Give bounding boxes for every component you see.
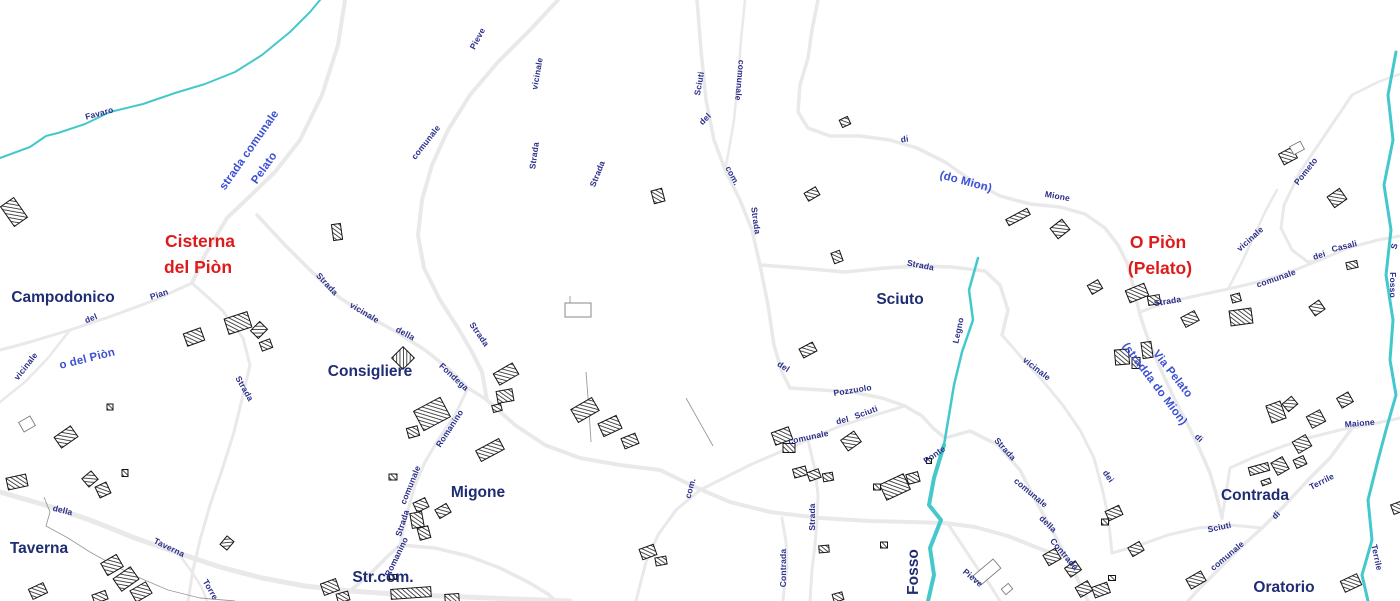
building	[1231, 293, 1242, 303]
map-viewport[interactable]: Cisternadel PiònO Piòn(Pelato)Campodonic…	[0, 0, 1400, 601]
building	[655, 556, 667, 566]
building	[639, 544, 657, 559]
stream	[944, 258, 978, 445]
map-label-vicinale: vicinale	[348, 300, 381, 325]
map-label-o-piòn: O Piòn	[1130, 232, 1186, 252]
map-label-pieve: Pieve	[468, 26, 488, 51]
map-label-sciuti: Sciuti	[1207, 520, 1233, 535]
building	[1391, 502, 1400, 515]
map-label-o-del-piòn: o del Piòn	[58, 346, 116, 371]
building-outline	[19, 416, 36, 432]
building	[1306, 410, 1325, 429]
map-label-comunale: comunale	[1255, 267, 1297, 290]
building	[410, 512, 424, 529]
map-label-fosso: Fosso	[905, 549, 922, 595]
map-label-strada: Strada	[393, 508, 411, 537]
building	[1340, 574, 1361, 592]
road	[1002, 335, 1112, 553]
map-label-comunale: comunale	[1208, 539, 1246, 573]
building	[822, 472, 833, 482]
map-label-del: del	[83, 311, 99, 325]
map-label-della: della	[1037, 513, 1059, 534]
map-label-oratorio: Oratorio	[1253, 579, 1314, 596]
building	[841, 431, 862, 451]
building	[807, 469, 821, 482]
building	[435, 503, 451, 518]
building	[1282, 396, 1298, 411]
map-label-strada: Strada	[314, 271, 340, 298]
building	[220, 536, 234, 550]
map-label-casali: Casali	[1330, 238, 1358, 254]
road	[1281, 95, 1352, 262]
building	[28, 583, 47, 600]
map-label-mione: Mione	[1044, 189, 1071, 203]
building	[417, 526, 431, 540]
building	[496, 389, 514, 404]
building	[336, 591, 350, 601]
building	[413, 498, 429, 513]
building	[391, 587, 432, 600]
map-label-ponte: Ponte	[921, 443, 947, 465]
map-label-strada: Strada	[807, 503, 817, 530]
road	[0, 492, 570, 601]
map-label-cisterna: Cisterna	[165, 231, 235, 251]
map-label-pometo: Pometo	[1292, 155, 1320, 186]
map-label-comunale: comunale	[733, 59, 747, 101]
map-canvas[interactable]: Cisternadel PiònO Piòn(Pelato)Campodonic…	[0, 0, 1400, 601]
minor-lines-layer	[44, 296, 713, 601]
map-label-vicinale: vicinale	[12, 350, 40, 382]
building	[107, 404, 113, 410]
map-label-strada: Strada	[468, 320, 492, 348]
building	[92, 590, 108, 601]
building	[493, 363, 519, 385]
building	[1, 198, 28, 227]
road	[697, 0, 790, 388]
building	[183, 328, 204, 346]
building	[1309, 300, 1325, 316]
stream	[0, 0, 320, 158]
building	[1125, 283, 1148, 303]
map-label-s: S	[1389, 242, 1400, 250]
building	[224, 312, 252, 335]
map-label-del-piòn: del Piòn	[164, 257, 232, 277]
map-label-legno: Legno	[950, 316, 965, 344]
stream	[1362, 52, 1396, 601]
building	[1109, 576, 1116, 581]
map-label-vicinale: vicinale	[1021, 355, 1053, 383]
building	[101, 554, 124, 575]
building-outline	[1001, 583, 1012, 594]
map-label-strada: Strada	[587, 159, 607, 188]
building	[880, 474, 911, 500]
map-label-dei: dei	[1311, 248, 1326, 261]
map-label-fondega: Fondega	[437, 361, 471, 393]
map-label-consigliere: Consigliere	[328, 363, 413, 380]
building	[1293, 456, 1307, 469]
building	[793, 466, 808, 478]
building	[1337, 392, 1354, 408]
map-label-strada: Strada	[527, 141, 541, 170]
road	[1133, 285, 1222, 518]
building	[6, 474, 28, 490]
map-label-sciuto: Sciuto	[876, 291, 923, 308]
building	[406, 426, 419, 439]
building	[259, 339, 272, 351]
building	[651, 188, 665, 203]
building	[331, 223, 342, 240]
building	[54, 426, 78, 448]
map-label-vicinale: vicinale	[1235, 224, 1266, 253]
map-label-contrada: Contrada	[1221, 487, 1289, 504]
road	[636, 406, 905, 601]
building	[445, 594, 460, 601]
map-label-terrile: Terrile	[1369, 543, 1384, 571]
building	[1092, 582, 1111, 598]
map-label-strada: Strada	[233, 374, 255, 403]
map-label-dei: dei	[1101, 468, 1116, 484]
building	[1346, 260, 1358, 269]
path-line	[686, 398, 713, 446]
map-label-della: della	[52, 503, 74, 518]
building	[804, 187, 820, 201]
map-label-strada: Strada	[992, 435, 1018, 462]
building	[1229, 308, 1253, 326]
building	[251, 322, 268, 339]
building	[799, 342, 817, 358]
building	[874, 484, 881, 490]
map-label-pelato: (Pelato)	[1128, 258, 1192, 278]
map-label-maione: Maione	[1344, 417, 1375, 430]
map-label-strada: Strada	[906, 258, 935, 273]
building	[1271, 457, 1289, 476]
building	[832, 592, 844, 601]
building	[598, 415, 622, 436]
building	[1248, 463, 1269, 476]
building	[122, 470, 128, 477]
building	[1102, 519, 1109, 525]
building	[82, 471, 98, 487]
building	[621, 433, 639, 449]
building	[839, 116, 851, 127]
road	[487, 400, 1062, 557]
building	[881, 542, 888, 548]
building	[95, 482, 111, 498]
building	[130, 582, 152, 601]
map-label-fosso: Fosso	[1388, 272, 1398, 298]
building	[1006, 208, 1030, 225]
map-label-favaro: Favaro	[84, 105, 114, 122]
map-label-di: di	[900, 134, 909, 145]
building	[1261, 478, 1271, 486]
building	[320, 579, 339, 596]
map-label-do-mion: (do Mion)	[938, 169, 993, 194]
building	[906, 472, 920, 485]
building	[819, 545, 830, 553]
building	[476, 439, 505, 462]
building	[389, 474, 397, 480]
map-label-migone: Migone	[451, 484, 506, 501]
map-label-della: della	[394, 324, 417, 342]
building	[1327, 188, 1347, 207]
road	[798, 0, 1133, 285]
building-outline	[565, 303, 591, 317]
building	[1050, 219, 1070, 238]
map-label-contrada: Contrada	[778, 549, 788, 588]
map-label-vicinale: vicinale	[529, 57, 544, 91]
building	[1087, 280, 1102, 295]
building	[571, 398, 599, 423]
map-label-taverna: Taverna	[10, 540, 69, 557]
map-label-campodonico: Campodonico	[11, 289, 114, 306]
building	[831, 250, 843, 263]
building	[1181, 311, 1199, 328]
map-label-comunale: comunale	[1012, 476, 1050, 510]
